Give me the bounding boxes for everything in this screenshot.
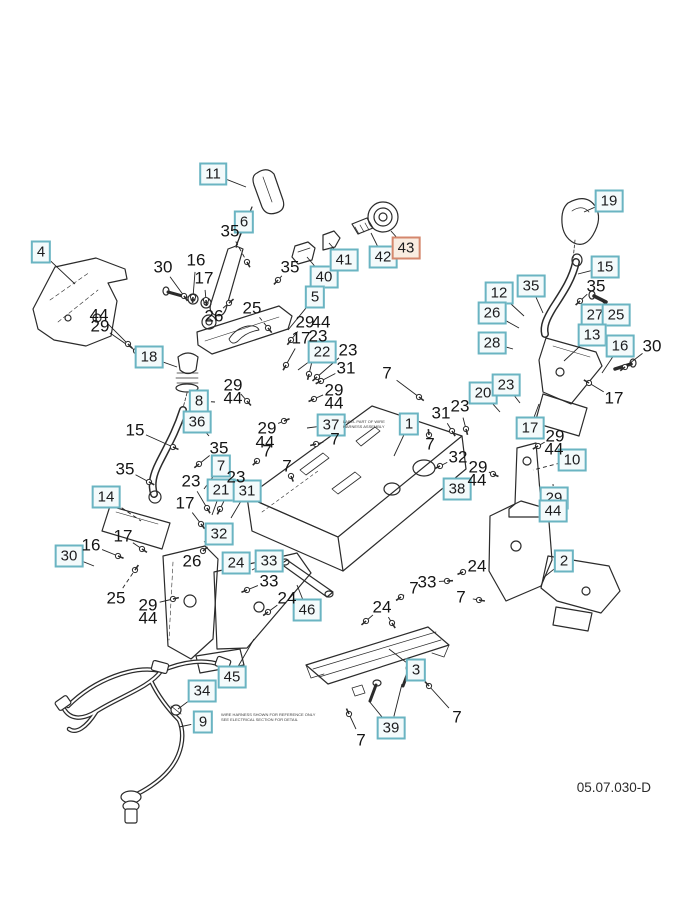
callout-9[interactable]: 9 [193, 711, 213, 734]
callout-3[interactable]: 3 [406, 659, 426, 682]
callout-2[interactable]: 2 [554, 550, 574, 573]
callout-28[interactable]: 28 [478, 332, 507, 355]
callout-33[interactable]: 33 [255, 550, 284, 573]
callout-35[interactable]: 35 [517, 275, 546, 298]
ref-25: 25 [107, 590, 126, 607]
callout-18[interactable]: 18 [135, 346, 164, 369]
pivot-plate [102, 506, 170, 549]
ref-7: 7 [456, 589, 465, 606]
ref-23: 23 [451, 398, 470, 415]
ref-7: 7 [425, 436, 434, 453]
callout-44[interactable]: 44 [539, 500, 568, 523]
callout-8[interactable]: 8 [189, 390, 209, 413]
ref-7: 7 [262, 443, 271, 460]
callout-4[interactable]: 4 [31, 241, 51, 264]
ref-35: 35 [221, 223, 240, 240]
callout-43[interactable]: 43 [392, 237, 421, 260]
ref-25: 25 [243, 300, 262, 317]
fine-print-note: WIRE HARNESS SHOWN FOR REFERENCE ONLYSEE… [221, 712, 315, 722]
ref-26: 26 [205, 308, 224, 325]
ref-35: 35 [587, 278, 606, 295]
ref-32: 32 [449, 449, 468, 466]
ref-35: 35 [116, 461, 135, 478]
ref-16: 16 [82, 537, 101, 554]
mounting-rail [306, 627, 449, 684]
callout-45[interactable]: 45 [218, 666, 247, 689]
callout-34[interactable]: 34 [188, 680, 217, 703]
ref-44: 44 [139, 610, 158, 627]
callout-32[interactable]: 32 [205, 523, 234, 546]
ref-7: 7 [409, 580, 418, 597]
ref-33: 33 [418, 574, 437, 591]
right-knob [562, 199, 599, 245]
ref-7: 7 [282, 458, 291, 475]
ref-35: 35 [210, 440, 229, 457]
ref-29: 29 [91, 318, 110, 335]
ref-30: 30 [643, 338, 662, 355]
ref-44: 44 [545, 441, 564, 458]
parts-diagram-page: 1146191535122627251316284041424351883622… [0, 0, 688, 900]
ref-31: 31 [337, 360, 356, 377]
ref-44: 44 [224, 390, 243, 407]
ref-23: 23 [309, 328, 328, 345]
callout-15[interactable]: 15 [591, 256, 620, 279]
lever-boot [178, 353, 198, 374]
callout-5[interactable]: 5 [305, 286, 325, 309]
ref-17: 17 [176, 495, 195, 512]
callout-46[interactable]: 46 [293, 599, 322, 622]
callout-11[interactable]: 11 [199, 163, 227, 186]
callout-13[interactable]: 13 [578, 324, 607, 347]
ref-44: 44 [468, 472, 487, 489]
ref-23: 23 [227, 469, 246, 486]
callout-19[interactable]: 19 [595, 190, 624, 213]
callout-30[interactable]: 30 [55, 545, 84, 568]
right-plate [539, 338, 602, 404]
callout-36[interactable]: 36 [183, 411, 212, 434]
callout-14[interactable]: 14 [92, 486, 121, 509]
ref-7: 7 [356, 732, 365, 749]
ref-24: 24 [278, 590, 297, 607]
ref-35: 35 [281, 259, 300, 276]
ref-15: 15 [126, 422, 145, 439]
ref-17: 17 [195, 270, 214, 287]
ref-23: 23 [339, 342, 358, 359]
ref-23: 23 [182, 473, 201, 490]
ref-16: 16 [187, 252, 206, 269]
callout-24[interactable]: 24 [222, 552, 251, 575]
ref-33: 33 [260, 573, 279, 590]
ref-17: 17 [114, 528, 133, 545]
callout-26[interactable]: 26 [478, 302, 507, 325]
ref-7: 7 [382, 365, 391, 382]
ref-24: 24 [373, 599, 392, 616]
ref-7: 7 [452, 709, 461, 726]
ref-44: 44 [325, 395, 344, 412]
callout-16[interactable]: 16 [606, 335, 635, 358]
ref-31: 31 [432, 405, 451, 422]
revision-code: 05.07.030-D [577, 780, 651, 795]
ref-30: 30 [154, 259, 173, 276]
ref-17: 17 [605, 390, 624, 407]
ref-26: 26 [183, 553, 202, 570]
ref-7: 7 [330, 431, 339, 448]
callout-17[interactable]: 17 [516, 417, 545, 440]
fine-print-note: LABEL PART OF WIREHARNESS ASSEMBLY [343, 419, 385, 429]
callout-41[interactable]: 41 [330, 249, 359, 272]
left-bracket [33, 258, 127, 346]
callout-1[interactable]: 1 [399, 413, 419, 436]
callout-39[interactable]: 39 [377, 717, 406, 740]
callout-23[interactable]: 23 [492, 374, 521, 397]
ref-24: 24 [468, 558, 487, 575]
